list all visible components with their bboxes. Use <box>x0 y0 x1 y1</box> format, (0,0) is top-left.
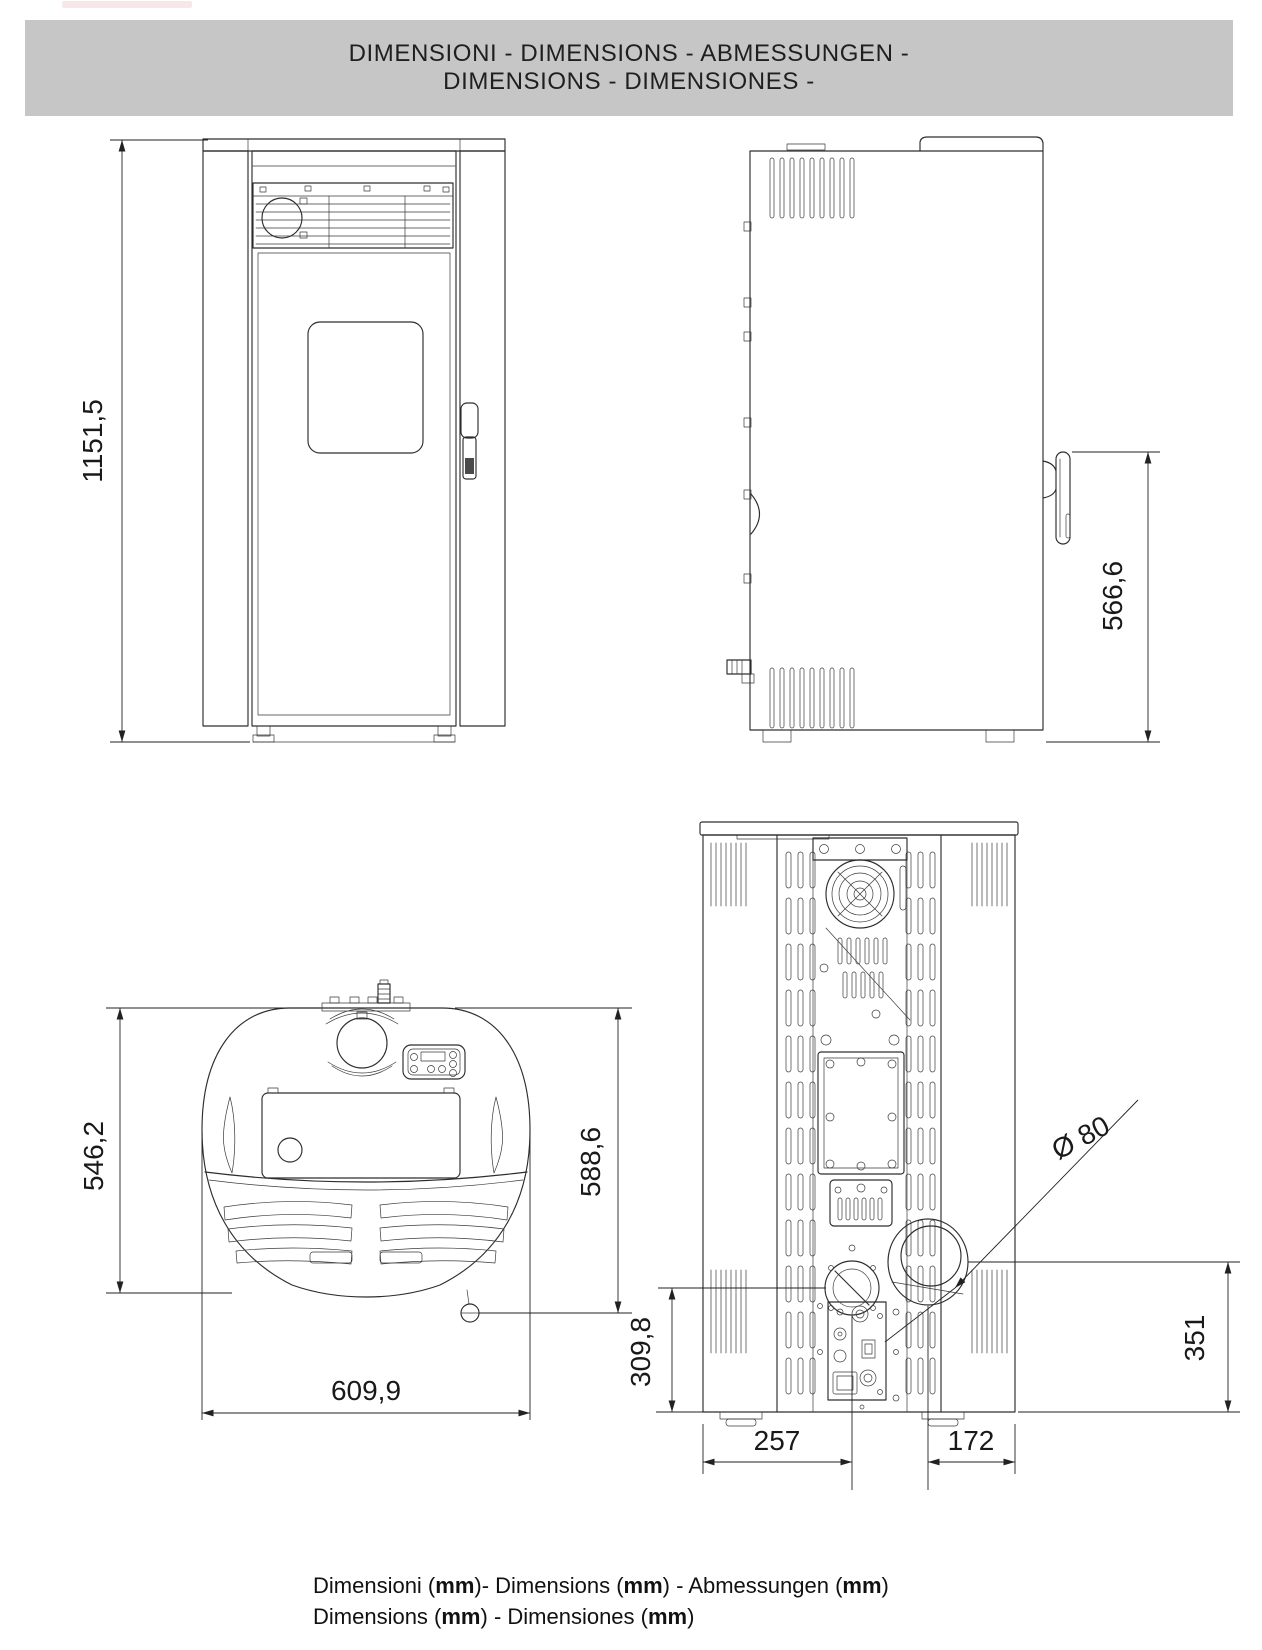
footer-lines: Dimensioni (mm)- Dimensions (mm) - Abmes… <box>313 1570 1013 1632</box>
rear-flue-height-dimension: 351 <box>968 1262 1240 1412</box>
rear-flue-diameter-label: Ø 80 <box>1046 1110 1114 1166</box>
control-panel-display <box>421 1052 445 1061</box>
rear-flue-height-label: 351 <box>1179 1315 1210 1362</box>
rear-access-panel <box>818 1052 904 1174</box>
top-width-label: 609,9 <box>331 1375 401 1406</box>
footer-caption: Dimensioni (mm)- Dimensions (mm) - Abmes… <box>313 1570 1013 1632</box>
front-height-dimension: 1151,5 <box>77 140 250 742</box>
front-left-panel <box>203 151 248 726</box>
top-width-dimension: 609,9 <box>202 1132 530 1420</box>
hopper-lid-knob <box>278 1138 302 1162</box>
top-hopper-lid <box>262 1088 460 1178</box>
rear-intake-height-label: 309,8 <box>625 1317 656 1387</box>
front-air-grille <box>253 183 453 248</box>
rear-top-right-hatch-vent <box>972 843 1007 906</box>
rear-air-intake <box>825 1245 879 1315</box>
rear-bottom-left-hatch-vent <box>711 1270 746 1353</box>
front-door-handle <box>461 403 478 479</box>
side-top-vents <box>770 158 854 218</box>
rear-body <box>703 835 1015 1412</box>
rear-lower-bracket <box>830 1180 892 1226</box>
side-feet <box>763 730 1014 742</box>
rear-intake-offset-label: 257 <box>754 1425 801 1456</box>
rear-intake-height-dimension: 309,8 <box>625 1288 826 1412</box>
control-panel-button <box>439 1066 446 1073</box>
technical-drawing-svg: 1151,5 <box>0 0 1262 1650</box>
rear-bottom-dimensions: 257 172 <box>703 1306 1015 1490</box>
rear-slot-vents <box>786 852 935 1394</box>
rear-bottom-right-hatch-vent <box>972 1270 1007 1353</box>
front-door-window <box>308 322 423 453</box>
top-front-knob <box>461 1290 479 1322</box>
control-panel-button <box>450 1061 457 1068</box>
top-right-crescent-vent <box>491 1097 502 1173</box>
side-handle-height-label: 566,6 <box>1097 561 1128 631</box>
rear-feet <box>720 1412 964 1426</box>
side-handle-height-dimension: 566,6 <box>1046 452 1160 742</box>
control-panel-button <box>450 1070 457 1077</box>
top-depth-right-label: 588,6 <box>575 1127 606 1197</box>
rear-electrical-panel <box>818 1302 900 1409</box>
top-flue-outlet <box>326 1009 398 1076</box>
front-height-label: 1151,5 <box>77 399 108 483</box>
top-body-outline <box>202 1008 530 1297</box>
top-view-drawing: 546,2 588,6 609,9 <box>78 980 632 1420</box>
rear-top-bracket <box>813 838 907 860</box>
control-panel-button <box>450 1052 457 1059</box>
top-rear-bracket <box>322 980 410 1011</box>
control-panel-button <box>428 1066 435 1073</box>
rear-slat-cluster <box>820 928 910 1020</box>
control-panel-button <box>411 1054 418 1061</box>
top-depth-right-dimension: 588,6 <box>455 1008 632 1313</box>
rear-flue-offset-label: 172 <box>948 1425 995 1456</box>
rear-top-left-hatch-vent <box>711 843 746 906</box>
front-feet <box>253 726 455 742</box>
side-view-drawing: 566,6 <box>727 137 1160 742</box>
side-door-profile <box>751 494 760 534</box>
top-depth-left-label: 546,2 <box>78 1121 109 1191</box>
power-switch <box>862 1340 875 1358</box>
front-view-drawing: 1151,5 <box>77 139 505 742</box>
top-left-crescent-vent <box>223 1097 234 1173</box>
side-bottom-vents <box>770 668 854 728</box>
rear-fan <box>826 860 906 928</box>
front-center-body <box>252 151 456 726</box>
top-front-grille <box>205 1172 527 1264</box>
rear-view-drawing: Ø 80 309,8 351 257 172 <box>625 822 1240 1490</box>
top-depth-left-dimension: 546,2 <box>78 1008 320 1293</box>
side-body <box>750 151 1043 730</box>
rear-flue-outlet <box>888 1219 968 1305</box>
side-door-handle <box>1043 452 1070 544</box>
control-panel-button <box>411 1066 418 1073</box>
rear-top-lid <box>700 822 1018 835</box>
power-socket <box>833 1372 857 1394</box>
top-control-panel <box>403 1045 465 1079</box>
